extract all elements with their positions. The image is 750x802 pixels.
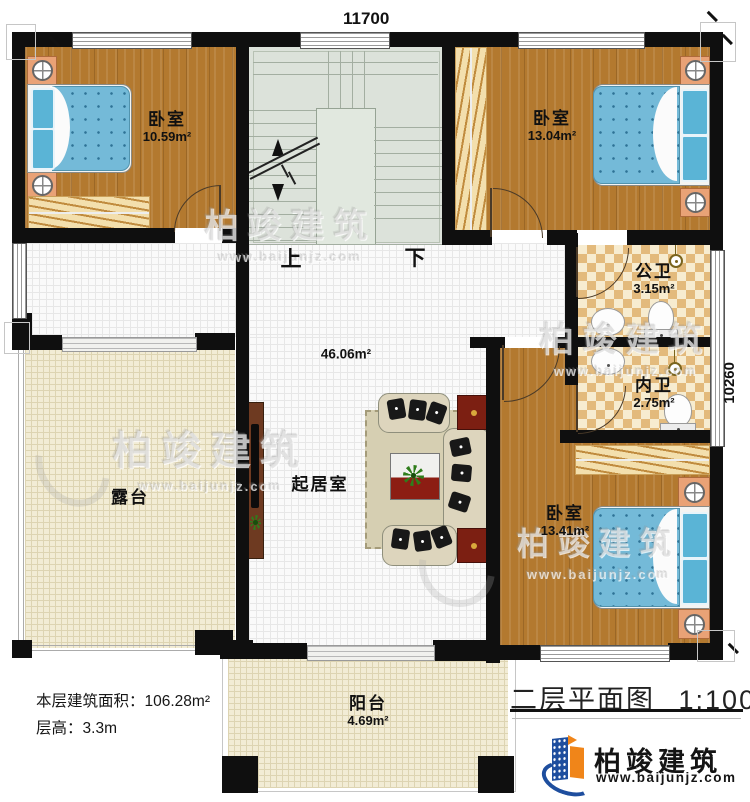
- sofa-cushion: [408, 399, 427, 421]
- stair-tread: [328, 51, 329, 108]
- stair-tread: [249, 175, 316, 176]
- room-name: 卧室: [541, 504, 589, 524]
- stair-tread: [374, 153, 442, 154]
- wardrobe: [455, 47, 487, 232]
- title-underline: [510, 709, 743, 712]
- watermark-text: 柏竣建筑: [478, 518, 718, 564]
- extension-line: [4, 322, 30, 354]
- room-name: 起居室: [292, 475, 349, 495]
- floor-plan: 柏竣建筑 www.baijunjz.com 柏竣建筑 www.baijunjz.…: [0, 0, 750, 802]
- wall-column: [220, 640, 253, 659]
- lamp-icon: [685, 60, 706, 81]
- wall: [470, 337, 505, 348]
- wall: [253, 643, 307, 659]
- floor-height-value: 3.3m: [83, 720, 117, 737]
- sofa-cushion: [451, 464, 472, 483]
- wall: [32, 335, 62, 350]
- stair-tread: [374, 127, 442, 128]
- sliding-door: [62, 337, 197, 352]
- door-leaf: [576, 385, 578, 432]
- dimension-right: 10260: [721, 362, 738, 404]
- stair-tread: [364, 51, 365, 108]
- watermark: 柏竣建筑 www.baijunjz.com: [478, 518, 718, 581]
- room-label-living: 起居室: [292, 475, 349, 495]
- room-label-bedroom2: 卧室 13.04m²: [528, 109, 576, 143]
- dresser: [28, 196, 150, 230]
- room-label-inner-bath: 内卫 2.75m²: [633, 376, 674, 410]
- room-label-balcony: 阳台 4.69m²: [347, 694, 388, 728]
- stair-tread: [249, 123, 316, 124]
- title-underline-thin: [512, 718, 741, 719]
- terrace-parapet: [25, 645, 195, 646]
- wardrobe: [575, 445, 710, 475]
- room-area: 4.69m²: [347, 713, 388, 728]
- nightstand: [680, 188, 710, 217]
- nightstand: [27, 56, 57, 85]
- lamp-icon: [32, 175, 53, 196]
- watermark: 柏竣建筑 www.baijunjz.com: [95, 418, 325, 493]
- floor-height-line: 层高：3.3m: [36, 715, 210, 742]
- sofa-cushion: [391, 528, 411, 550]
- terrace-parapet: [23, 350, 24, 642]
- door-leaf: [502, 345, 504, 400]
- pillow: [31, 88, 55, 130]
- terrace-parapet: [18, 350, 19, 642]
- logo-flag-icon: [568, 735, 577, 745]
- wall-column: [433, 640, 497, 661]
- pillow: [681, 89, 709, 136]
- living-room-area: 46.06m²: [321, 347, 371, 362]
- room-label-bedroom3: 卧室 13.41m²: [541, 504, 589, 538]
- stair-up-label: 上: [281, 243, 302, 273]
- watermark-url: www.baijunjz.com: [478, 566, 718, 581]
- sofa-cushion: [386, 398, 406, 421]
- stair-tread: [374, 166, 442, 167]
- lamp-icon: [32, 60, 53, 81]
- stair-tread: [249, 136, 316, 137]
- stair-tread: [253, 74, 438, 75]
- wall: [12, 32, 25, 243]
- window: [300, 32, 390, 49]
- stair-down-label: 下: [405, 242, 426, 272]
- room-area: 13.04m²: [528, 128, 576, 143]
- watermark-url: www.baijunjz.com: [505, 363, 745, 378]
- wall: [710, 32, 723, 250]
- room-label-public-bath: 公卫 3.15m²: [633, 262, 674, 296]
- floor-area-value: 106.28m²: [145, 693, 210, 710]
- room-area: 3.15m²: [633, 281, 674, 296]
- window: [518, 32, 645, 49]
- stair-tread: [253, 62, 438, 63]
- floor-height-label: 层高：: [36, 720, 83, 737]
- wall: [442, 32, 455, 245]
- floor-area-line: 本层建筑面积：106.28m²: [36, 688, 210, 715]
- extension-line: [700, 22, 736, 62]
- room-area: 10.59m²: [143, 129, 191, 144]
- pillow: [31, 128, 55, 170]
- wall-column: [478, 756, 514, 793]
- logo-building-blue-icon: [552, 737, 568, 781]
- pillow: [681, 135, 709, 182]
- watermark: 柏竣建筑 www.baijunjz.com: [505, 312, 745, 378]
- watermark-text: 柏竣建筑: [95, 418, 325, 476]
- room-label-terrace: 露台: [111, 488, 149, 508]
- stair-tread: [352, 51, 353, 108]
- lamp-icon: [685, 192, 706, 213]
- plant-icon: [403, 465, 424, 486]
- brand-url: www.baijunjz.com: [596, 770, 737, 785]
- sliding-door: [307, 645, 435, 661]
- room-area: 2.75m²: [633, 395, 674, 410]
- logo-swoosh-icon: [537, 755, 598, 802]
- terrace-parapet: [25, 650, 195, 651]
- room-name: 公卫: [633, 262, 674, 282]
- watermark-text: 柏竣建筑: [505, 312, 745, 361]
- plant-icon: [250, 515, 261, 530]
- wall: [497, 645, 540, 660]
- room-name: 内卫: [633, 376, 674, 396]
- stair-tread: [374, 192, 442, 193]
- wall: [627, 230, 723, 245]
- wall-column: [12, 640, 32, 658]
- door-leaf: [576, 247, 578, 297]
- room-name: 阳台: [347, 694, 388, 714]
- room-name: 露台: [111, 488, 149, 508]
- stair-tread: [340, 51, 341, 108]
- stair-tread: [374, 179, 442, 180]
- nightstand: [678, 477, 710, 507]
- wall: [442, 230, 492, 245]
- room-name: 卧室: [143, 110, 191, 130]
- door-leaf: [490, 188, 492, 237]
- watermark-text: 柏竣建筑: [150, 198, 430, 247]
- logo-building-orange-icon: [570, 746, 584, 779]
- extension-line: [6, 24, 36, 60]
- lamp-icon: [684, 482, 705, 503]
- window: [540, 645, 670, 662]
- dimension-top: 11700: [343, 9, 389, 29]
- window: [12, 243, 27, 319]
- window: [72, 32, 192, 49]
- dimension-tick: [707, 11, 718, 22]
- stair-tread: [374, 140, 442, 141]
- room-area: 13.41m²: [541, 523, 589, 538]
- wall-column: [222, 756, 258, 793]
- wall-column: [195, 333, 235, 350]
- floor-area-label: 本层建筑面积：: [36, 693, 145, 710]
- stair-tread: [249, 110, 316, 111]
- room-label-bedroom1: 卧室 10.59m²: [143, 110, 191, 144]
- wall: [486, 337, 500, 663]
- room-name: 卧室: [528, 109, 576, 129]
- extension-line: [697, 630, 735, 662]
- floor-info: 本层建筑面积：106.28m² 层高：3.3m: [36, 688, 210, 742]
